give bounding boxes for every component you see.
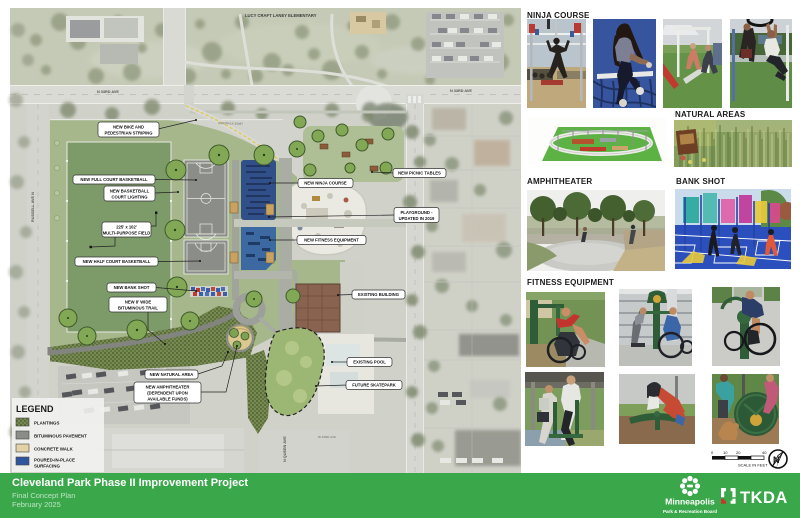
svg-text:10: 10 bbox=[723, 450, 728, 455]
svg-text:NEW NATURAL AREA: NEW NATURAL AREA bbox=[150, 372, 194, 377]
svg-text:NEW BANK SHOT: NEW BANK SHOT bbox=[114, 285, 150, 290]
svg-text:UPDATED IN 2019: UPDATED IN 2019 bbox=[399, 216, 435, 221]
svg-text:N 33RD AVE: N 33RD AVE bbox=[450, 89, 472, 93]
svg-text:W 32ND AVE: W 32ND AVE bbox=[318, 435, 336, 439]
svg-text:SURFACING: SURFACING bbox=[34, 464, 60, 469]
svg-text:NEW AMPHITHEATER: NEW AMPHITHEATER bbox=[146, 385, 190, 390]
svg-text:20: 20 bbox=[736, 450, 741, 455]
svg-text:COURT LIGHTING: COURT LIGHTING bbox=[111, 195, 147, 200]
svg-text:POURED-IN-PLACE: POURED-IN-PLACE bbox=[34, 458, 75, 463]
svg-text:40: 40 bbox=[762, 450, 767, 455]
svg-text:PEDESTRIAN STRIPING: PEDESTRIAN STRIPING bbox=[105, 131, 153, 136]
svg-text:FUTURE SKATEPARK: FUTURE SKATEPARK bbox=[352, 383, 396, 388]
svg-text:LUCY CRAFT LANEY ELEMENTARY: LUCY CRAFT LANEY ELEMENTARY bbox=[245, 13, 317, 18]
svg-text:NEW BASKETBALL: NEW BASKETBALL bbox=[110, 189, 150, 194]
svg-text:BITUMINOUS PAVEMENT: BITUMINOUS PAVEMENT bbox=[34, 434, 87, 439]
svg-text:EXISTING BUILDING: EXISTING BUILDING bbox=[358, 292, 399, 297]
svg-text:0: 0 bbox=[711, 450, 714, 455]
svg-text:AVAILABLE FUNDS): AVAILABLE FUNDS) bbox=[147, 397, 188, 402]
svg-text:NEW BIKE AND: NEW BIKE AND bbox=[113, 125, 144, 130]
svg-text:N: N bbox=[773, 455, 780, 465]
svg-text:NEW 8' WIDE: NEW 8' WIDE bbox=[125, 300, 152, 305]
svg-text:SCALE IN FEET: SCALE IN FEET bbox=[738, 463, 768, 468]
svg-text:PLAYGROUND -: PLAYGROUND - bbox=[401, 210, 434, 215]
svg-text:PLANTINGS: PLANTINGS bbox=[34, 421, 59, 426]
svg-text:Park & Recreation Board: Park & Recreation Board bbox=[663, 509, 717, 514]
svg-text:NEW NINJA COURSE: NEW NINJA COURSE bbox=[304, 181, 347, 186]
svg-text:NEW HALF COURT BASKETBALL: NEW HALF COURT BASKETBALL bbox=[83, 259, 151, 264]
svg-text:RUSSELL AVE N: RUSSELL AVE N bbox=[31, 192, 35, 222]
svg-text:N QUEEN AVE: N QUEEN AVE bbox=[283, 436, 287, 462]
svg-text:MULTI-PURPOSE FIELD: MULTI-PURPOSE FIELD bbox=[103, 231, 151, 236]
svg-text:NEW FULL COURT BASKETBALL: NEW FULL COURT BASKETBALL bbox=[80, 177, 148, 182]
svg-text:EXISTING POOL: EXISTING POOL bbox=[353, 360, 386, 365]
svg-text:NEW FITNESS EQUIPMENT: NEW FITNESS EQUIPMENT bbox=[304, 238, 359, 243]
svg-text:LEGEND: LEGEND bbox=[16, 404, 54, 414]
svg-text:225' x 102': 225' x 102' bbox=[116, 225, 137, 230]
svg-text:TKDA: TKDA bbox=[740, 489, 788, 507]
svg-text:BITUMINOUS TRAIL: BITUMINOUS TRAIL bbox=[118, 306, 158, 311]
svg-text:CONCRETE WALK: CONCRETE WALK bbox=[34, 447, 74, 452]
svg-text:N 33RD AVE: N 33RD AVE bbox=[97, 90, 119, 94]
svg-text:NEW PICNIC TABLES: NEW PICNIC TABLES bbox=[398, 171, 441, 176]
svg-text:Minneapolis: Minneapolis bbox=[665, 497, 715, 507]
svg-text:(DEPENDENT UPON: (DEPENDENT UPON bbox=[147, 391, 187, 396]
